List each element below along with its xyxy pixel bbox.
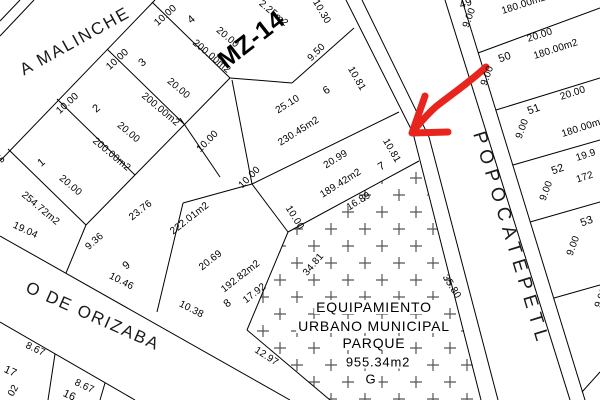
park-label-line1: EQUIPAMIENTO: [314, 300, 434, 314]
red-arrow-annotation: [412, 67, 486, 133]
park-tag-label: G: [364, 373, 379, 386]
cadastral-map: A MALINCHE O DE ORIZABA POPOCATEPETL MZ-…: [0, 0, 600, 400]
park-label-line3: PARQUE: [341, 336, 408, 350]
park-area-label: 955.34m2: [344, 356, 412, 369]
park-label-line2: URBANO MUNICIPAL: [296, 319, 452, 333]
